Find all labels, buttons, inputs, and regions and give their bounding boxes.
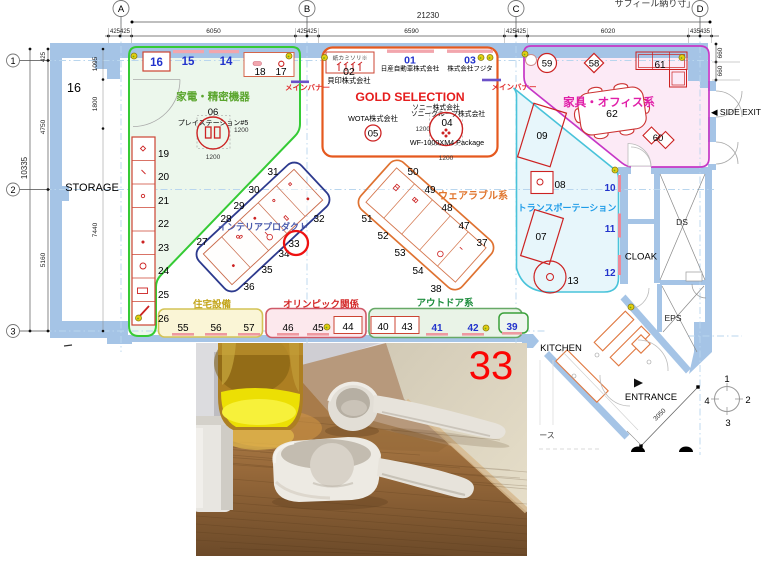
svg-text:59: 59 <box>542 59 553 70</box>
svg-text:37: 37 <box>476 238 488 249</box>
svg-text:トランスポーテーション: トランスポーテーション <box>518 202 617 213</box>
svg-text:1200: 1200 <box>439 155 454 162</box>
svg-text:42: 42 <box>467 323 479 334</box>
svg-text:オリンピック関係: オリンピック関係 <box>283 299 360 311</box>
svg-text:18: 18 <box>254 67 266 78</box>
svg-text:660: 660 <box>717 65 724 76</box>
svg-text:14: 14 <box>220 56 233 68</box>
svg-text:16: 16 <box>67 81 81 95</box>
svg-text:4750: 4750 <box>40 119 47 134</box>
svg-text:21: 21 <box>158 196 170 207</box>
svg-text:41: 41 <box>431 323 443 334</box>
svg-text:435435: 435435 <box>690 29 711 35</box>
svg-text:15: 15 <box>182 56 195 68</box>
svg-text:6020: 6020 <box>601 28 616 35</box>
svg-text:貝印株式会社: 貝印株式会社 <box>327 76 370 85</box>
svg-text:20: 20 <box>158 172 170 183</box>
svg-text:44: 44 <box>342 322 354 333</box>
svg-text:60: 60 <box>653 133 664 144</box>
svg-text:07: 07 <box>535 232 547 243</box>
svg-text:1200: 1200 <box>416 126 431 133</box>
svg-text:28: 28 <box>220 214 232 225</box>
svg-text:09: 09 <box>536 131 548 142</box>
svg-text:46: 46 <box>282 323 294 334</box>
svg-text:2: 2 <box>10 185 15 195</box>
svg-text:2: 2 <box>745 395 750 406</box>
svg-text:26: 26 <box>158 314 170 325</box>
svg-text:DS: DS <box>676 217 688 227</box>
svg-text:54: 54 <box>412 266 424 277</box>
svg-text:5160: 5160 <box>40 252 47 267</box>
svg-text:43: 43 <box>401 322 413 333</box>
svg-text:1200: 1200 <box>206 154 221 161</box>
svg-text:12: 12 <box>604 268 616 279</box>
svg-text:KITCHEN: KITCHEN <box>540 343 582 354</box>
svg-text:24: 24 <box>158 266 170 277</box>
svg-text:11: 11 <box>605 224 616 235</box>
svg-text:62: 62 <box>606 108 618 120</box>
svg-text:日産自動車株式会社: 日産自動車株式会社 <box>381 64 440 73</box>
svg-text:56: 56 <box>210 323 222 334</box>
svg-text:6590: 6590 <box>404 28 419 35</box>
svg-text:紙カミソリ※: 紙カミソリ※ <box>333 54 368 62</box>
svg-text:425: 425 <box>41 51 47 62</box>
svg-text:メインバナー: メインバナー <box>492 83 537 92</box>
svg-text:4: 4 <box>704 396 709 407</box>
svg-text:家電・精密機器: 家電・精密機器 <box>176 90 250 103</box>
svg-text:33: 33 <box>288 239 300 250</box>
svg-text:1095: 1095 <box>92 56 99 71</box>
svg-text:32: 32 <box>313 214 325 225</box>
svg-text:22: 22 <box>158 219 170 230</box>
svg-text:58: 58 <box>589 59 600 70</box>
svg-text:WOTA株式会社: WOTA株式会社 <box>348 114 398 123</box>
svg-text:50: 50 <box>407 167 419 178</box>
svg-text:3: 3 <box>725 418 730 429</box>
svg-text:25: 25 <box>158 290 170 301</box>
svg-text:30: 30 <box>248 185 260 196</box>
svg-text:425425: 425425 <box>506 29 527 35</box>
svg-text:52: 52 <box>377 231 389 242</box>
svg-text:38: 38 <box>430 284 442 295</box>
svg-text:08: 08 <box>554 180 566 191</box>
svg-text:19: 19 <box>158 149 170 160</box>
svg-text:16: 16 <box>150 57 163 69</box>
svg-text:プレイステーション#5: プレイステーション#5 <box>178 119 249 127</box>
svg-text:A: A <box>118 4 125 15</box>
svg-text:D: D <box>697 4 704 15</box>
svg-text:17: 17 <box>275 67 287 78</box>
svg-text:6050: 6050 <box>206 28 221 35</box>
svg-text:33: 33 <box>469 344 514 388</box>
svg-text:3: 3 <box>10 327 15 337</box>
svg-text:EPS: EPS <box>664 313 681 323</box>
svg-text:7440: 7440 <box>92 222 99 237</box>
svg-text:GOLD SELECTION: GOLD SELECTION <box>355 90 464 104</box>
svg-text:660: 660 <box>717 47 724 58</box>
svg-text:ソニーグループ株式会社: ソニーグループ株式会社 <box>411 109 486 118</box>
svg-text:23: 23 <box>158 243 170 254</box>
svg-text:40: 40 <box>377 322 389 333</box>
svg-text:39: 39 <box>506 322 518 333</box>
svg-text:49: 49 <box>424 185 436 196</box>
svg-text:10: 10 <box>604 183 616 194</box>
svg-text:425425: 425425 <box>110 29 131 35</box>
svg-text:27: 27 <box>196 237 208 248</box>
svg-text:61: 61 <box>654 60 666 71</box>
svg-text:55: 55 <box>177 323 189 334</box>
svg-text:53: 53 <box>394 248 406 259</box>
svg-text:47: 47 <box>458 221 470 232</box>
svg-text:WF-1000XM4 Package: WF-1000XM4 Package <box>410 138 484 147</box>
svg-text:13: 13 <box>567 276 579 287</box>
svg-text:1: 1 <box>10 56 15 66</box>
svg-text:21230: 21230 <box>417 11 440 20</box>
svg-text:住宅設備: 住宅設備 <box>193 299 232 311</box>
svg-text:CLOAK: CLOAK <box>625 252 658 263</box>
svg-text:31: 31 <box>267 167 279 178</box>
svg-text:家具・オフィス系: 家具・オフィス系 <box>563 95 655 109</box>
svg-text:サフィール納り寸」: サフィール納り寸」 <box>615 0 696 9</box>
svg-text:アウトドア系: アウトドア系 <box>416 297 474 309</box>
svg-text:04: 04 <box>441 118 453 129</box>
svg-text:1200: 1200 <box>234 127 249 134</box>
svg-text:05: 05 <box>368 129 379 140</box>
svg-text:29: 29 <box>233 201 245 212</box>
svg-text:35: 35 <box>261 265 273 276</box>
svg-text:STORAGE: STORAGE <box>65 182 119 194</box>
svg-text:ウェアラブル系: ウェアラブル系 <box>438 189 508 202</box>
svg-text:48: 48 <box>441 203 453 214</box>
svg-text:株式会社フジタ: 株式会社フジタ <box>447 64 492 73</box>
svg-text:ENTRANCE: ENTRANCE <box>625 392 677 403</box>
svg-text:57: 57 <box>243 323 255 334</box>
svg-text:1: 1 <box>724 374 729 385</box>
svg-text:36: 36 <box>243 282 255 293</box>
svg-text:メインバナー: メインバナー <box>285 83 330 92</box>
svg-text:C: C <box>513 4 520 15</box>
svg-text:1800: 1800 <box>92 96 99 111</box>
svg-text:51: 51 <box>361 214 373 225</box>
svg-text:ース: ース <box>539 431 555 440</box>
svg-text:10335: 10335 <box>20 156 29 179</box>
svg-text:◀ SIDE EXIT: ◀ SIDE EXIT <box>711 107 761 117</box>
svg-text:425425: 425425 <box>297 29 318 35</box>
svg-text:45: 45 <box>312 323 324 334</box>
svg-text:B: B <box>304 4 310 15</box>
